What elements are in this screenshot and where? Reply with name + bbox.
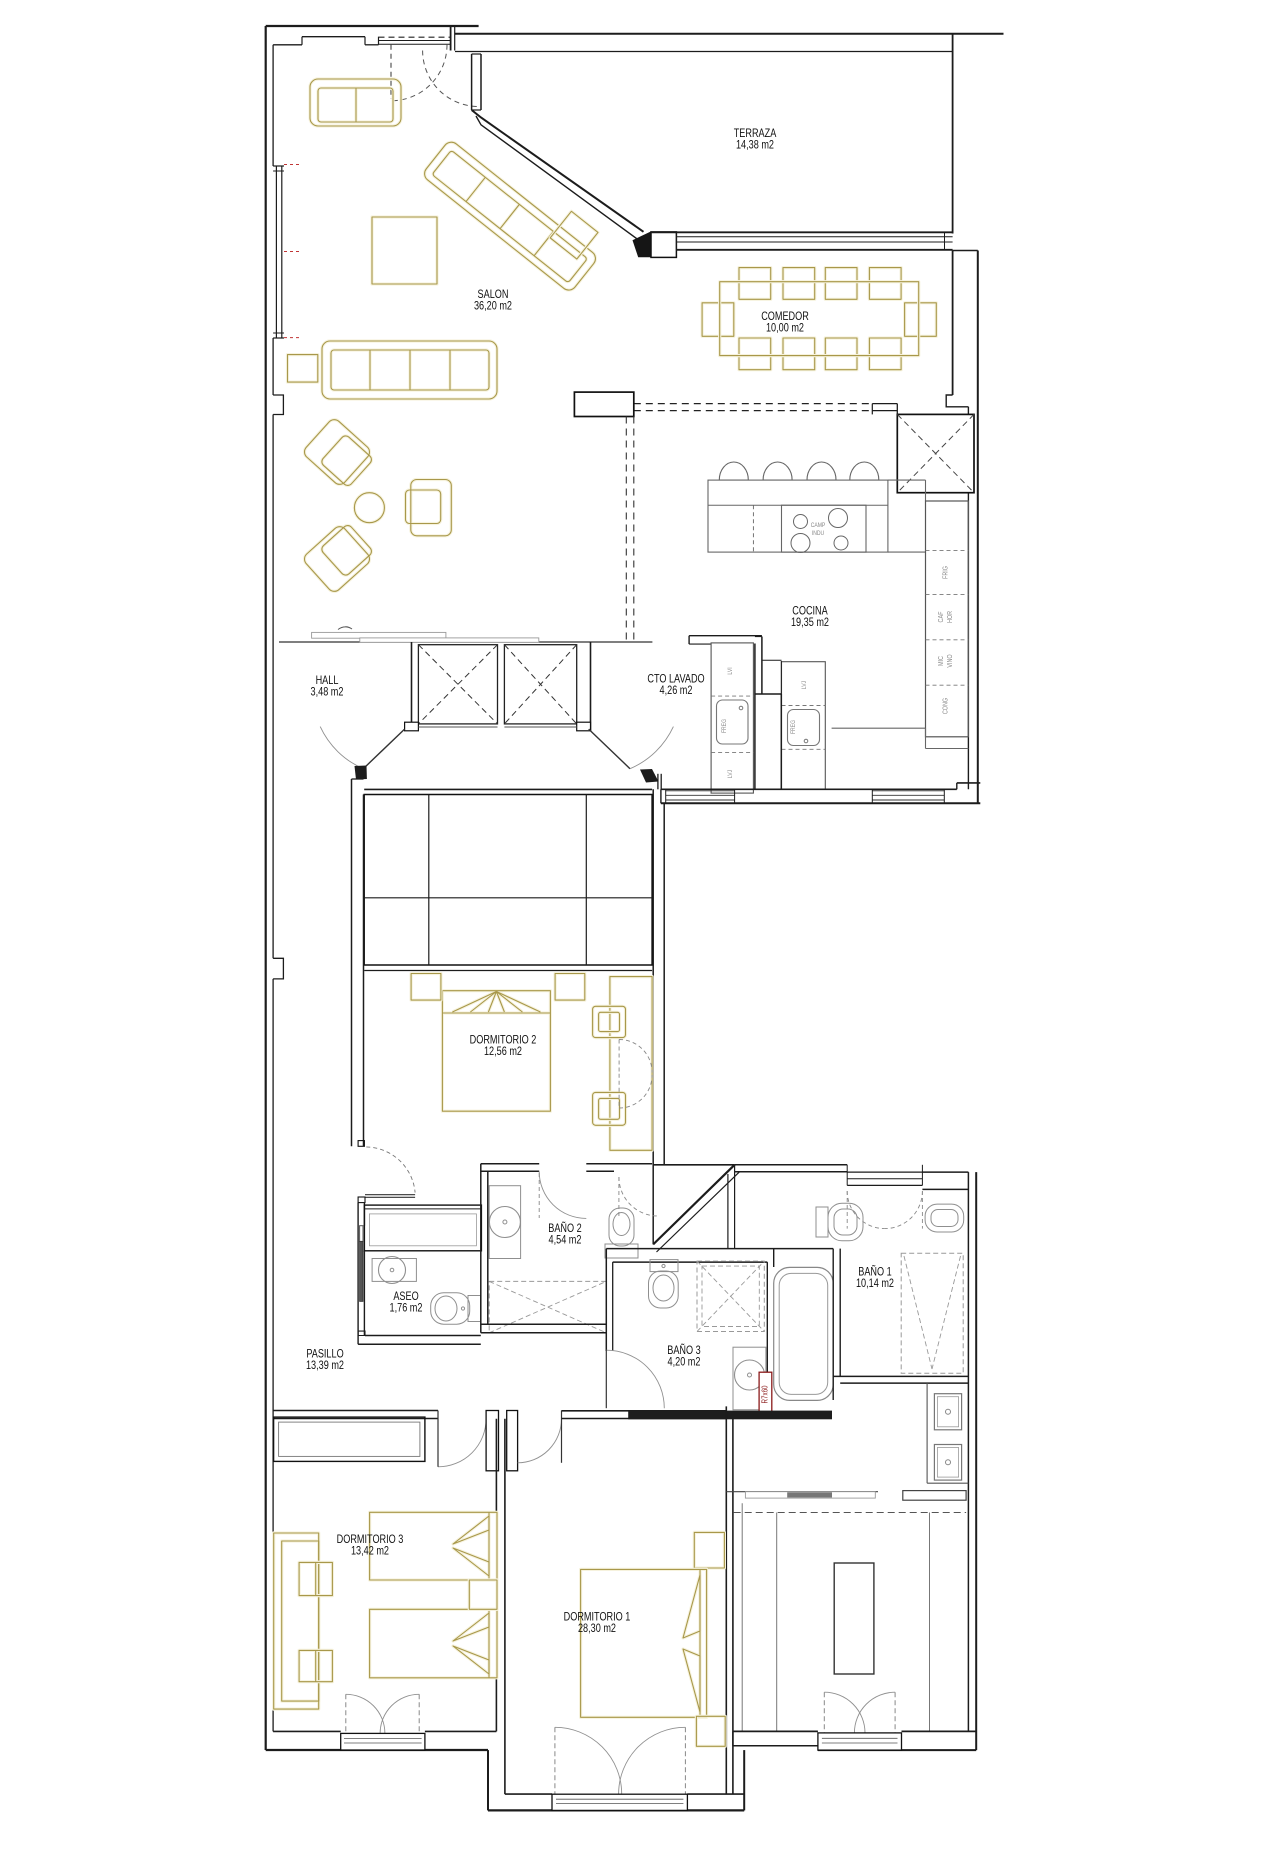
svg-text:HALL: HALL bbox=[316, 675, 339, 687]
svg-text:CAF: CAF bbox=[937, 611, 945, 622]
svg-text:DORMITORIO 3: DORMITORIO 3 bbox=[337, 1534, 404, 1546]
svg-text:CAMP: CAMP bbox=[811, 523, 826, 530]
svg-text:12,56 m2: 12,56 m2 bbox=[484, 1046, 522, 1058]
svg-text:BAÑO 2: BAÑO 2 bbox=[548, 1221, 582, 1235]
svg-text:14,38 m2: 14,38 m2 bbox=[736, 140, 774, 152]
svg-text:R7x60: R7x60 bbox=[761, 1385, 770, 1403]
svg-text:36,20 m2: 36,20 m2 bbox=[474, 301, 512, 313]
svg-text:COMEDOR: COMEDOR bbox=[761, 311, 809, 323]
svg-text:4,26 m2: 4,26 m2 bbox=[660, 685, 693, 697]
svg-text:DORMITORIO 2: DORMITORIO 2 bbox=[470, 1035, 537, 1047]
svg-text:PASILLO: PASILLO bbox=[306, 1349, 343, 1361]
svg-text:ASEO: ASEO bbox=[393, 1291, 418, 1303]
svg-text:10,14 m2: 10,14 m2 bbox=[856, 1278, 894, 1290]
svg-text:COCINA: COCINA bbox=[792, 606, 827, 618]
svg-text:INDU: INDU bbox=[812, 531, 824, 538]
svg-text:LVJ: LVJ bbox=[728, 770, 735, 778]
svg-text:LVJ: LVJ bbox=[802, 681, 809, 689]
svg-text:CTO LAVADO: CTO LAVADO bbox=[647, 674, 704, 686]
svg-text:3,48 m2: 3,48 m2 bbox=[311, 687, 344, 699]
svg-text:FREG: FREG bbox=[722, 719, 729, 733]
svg-text:BAÑO 3: BAÑO 3 bbox=[667, 1343, 701, 1357]
svg-text:CONG: CONG bbox=[942, 698, 950, 714]
svg-text:28,30 m2: 28,30 m2 bbox=[578, 1623, 616, 1635]
svg-text:VINO: VINO bbox=[946, 654, 954, 667]
svg-text:MIC: MIC bbox=[937, 656, 945, 666]
svg-text:13,39 m2: 13,39 m2 bbox=[306, 1360, 344, 1372]
svg-text:LVI: LVI bbox=[728, 667, 735, 675]
svg-text:FREG: FREG bbox=[791, 720, 798, 734]
svg-text:TERRAZA: TERRAZA bbox=[734, 128, 777, 140]
svg-text:DORMITORIO 1: DORMITORIO 1 bbox=[564, 1612, 631, 1624]
svg-text:SALON: SALON bbox=[478, 289, 509, 301]
svg-text:BAÑO 1: BAÑO 1 bbox=[858, 1264, 892, 1278]
svg-text:19,35 m2: 19,35 m2 bbox=[791, 617, 829, 629]
svg-text:1,76 m2: 1,76 m2 bbox=[390, 1303, 423, 1315]
svg-text:10,00 m2: 10,00 m2 bbox=[766, 323, 804, 335]
svg-text:4,20 m2: 4,20 m2 bbox=[668, 1357, 701, 1369]
svg-text:HOR: HOR bbox=[946, 611, 954, 624]
svg-text:FRIG: FRIG bbox=[942, 566, 950, 579]
svg-text:4,54 m2: 4,54 m2 bbox=[549, 1235, 582, 1247]
svg-text:13,42 m2: 13,42 m2 bbox=[351, 1546, 389, 1558]
